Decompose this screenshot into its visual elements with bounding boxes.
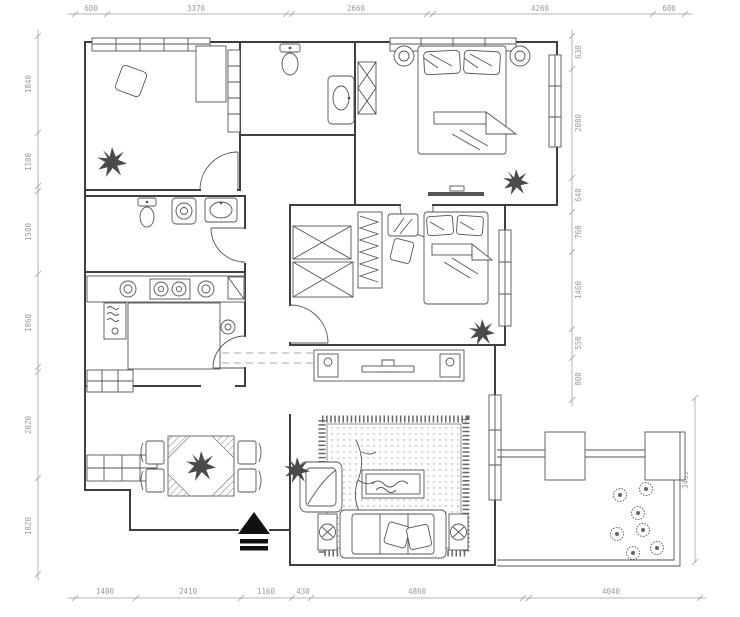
toilet-icon bbox=[280, 44, 300, 75]
dim-label: 2660 bbox=[347, 4, 366, 13]
sofa-icon bbox=[340, 510, 446, 558]
dim-label: 4860 bbox=[408, 587, 427, 596]
column-icon bbox=[545, 432, 585, 480]
dim-label: 630 bbox=[574, 45, 583, 59]
mirror-icon bbox=[388, 214, 418, 236]
door-arc-icon bbox=[211, 228, 245, 262]
dim-label: 550 bbox=[574, 336, 583, 350]
wardrobe-icon bbox=[358, 62, 376, 114]
pillow-icon bbox=[406, 524, 432, 550]
dim-label: 1100 bbox=[24, 152, 33, 171]
dimension-chain-bottom: 1400 2410 1160 430 4860 4040 bbox=[68, 587, 706, 601]
armchair-icon bbox=[300, 462, 342, 512]
dimension-chain-left: 1840 1100 1580 1860 2020 1820 bbox=[24, 30, 41, 580]
dim-label: 1400 bbox=[96, 587, 115, 596]
bed-icon bbox=[418, 46, 516, 154]
flower-icon bbox=[611, 483, 664, 560]
vanity-sink-icon bbox=[205, 198, 237, 222]
column-icon bbox=[645, 432, 685, 480]
dim-label: 430 bbox=[296, 587, 310, 596]
door-arc-icon bbox=[290, 305, 328, 343]
dim-label: 640 bbox=[574, 188, 583, 202]
room-bath2 bbox=[138, 198, 245, 262]
washer-icon bbox=[172, 198, 196, 224]
coffee-table-icon bbox=[362, 470, 424, 498]
plant-icon bbox=[503, 169, 529, 195]
dim-label: 4040 bbox=[602, 587, 621, 596]
dim-label: 760 bbox=[574, 225, 583, 239]
dim-label: 1160 bbox=[257, 587, 276, 596]
wardrobe-hangers-icon bbox=[358, 212, 382, 288]
room-study bbox=[97, 46, 240, 190]
dim-label: 600 bbox=[84, 4, 98, 13]
plant-icon bbox=[469, 319, 495, 345]
fridge-icon bbox=[104, 303, 126, 339]
entry-arrow-icon bbox=[238, 512, 270, 551]
room-kitchen bbox=[87, 276, 245, 369]
dim-label: 3370 bbox=[187, 4, 206, 13]
stove-icon bbox=[150, 279, 190, 299]
dim-label: 2020 bbox=[24, 415, 33, 434]
chair-icon bbox=[114, 64, 147, 97]
pillow-icon bbox=[423, 50, 460, 75]
room-living bbox=[284, 350, 468, 558]
x-cabinet-icon bbox=[293, 226, 353, 297]
dimension-chain-right: 630 2080 640 760 1460 550 800 bbox=[569, 30, 583, 406]
desk-icon bbox=[196, 46, 226, 102]
bed-icon bbox=[424, 212, 492, 304]
floor-plan-page: 600 3370 2660 4260 600 1840 1100 1580 18… bbox=[0, 0, 740, 617]
dim-label: 1840 bbox=[24, 74, 33, 93]
dimension-chain-top: 600 3370 2660 4260 600 bbox=[68, 4, 692, 17]
dim-label: 600 bbox=[662, 4, 676, 13]
room-bath-top bbox=[280, 44, 354, 124]
plant-icon bbox=[97, 147, 127, 177]
chair-icon bbox=[390, 238, 415, 264]
shelf-icon bbox=[228, 50, 240, 132]
pillow-icon bbox=[456, 215, 483, 236]
door-arc-icon bbox=[200, 152, 238, 190]
pillow-icon bbox=[463, 50, 500, 75]
dim-label: 1820 bbox=[24, 516, 33, 535]
balcony bbox=[497, 432, 685, 566]
corridor-dashed-lines bbox=[210, 353, 322, 363]
toilet-icon bbox=[138, 198, 156, 227]
dim-label: 1580 bbox=[24, 222, 33, 241]
dim-label: 2410 bbox=[179, 587, 198, 596]
pillow-icon bbox=[426, 215, 453, 236]
room-bedroom2 bbox=[290, 212, 495, 345]
dim-label: 4260 bbox=[531, 4, 550, 13]
dim-label: 800 bbox=[574, 372, 583, 386]
floor-plan-canvas: 600 3370 2660 4260 600 1840 1100 1580 18… bbox=[0, 0, 740, 617]
kitchen-island-icon bbox=[128, 303, 235, 369]
tv-console-icon bbox=[314, 350, 464, 381]
dim-label: 1460 bbox=[574, 280, 583, 299]
dim-label: 1860 bbox=[24, 313, 33, 332]
room-dining bbox=[141, 436, 261, 496]
x-cabinet-icon bbox=[228, 277, 244, 299]
vanity-sink-icon bbox=[328, 76, 354, 124]
dim-label: 2080 bbox=[574, 113, 583, 132]
tv-icon bbox=[428, 186, 484, 196]
